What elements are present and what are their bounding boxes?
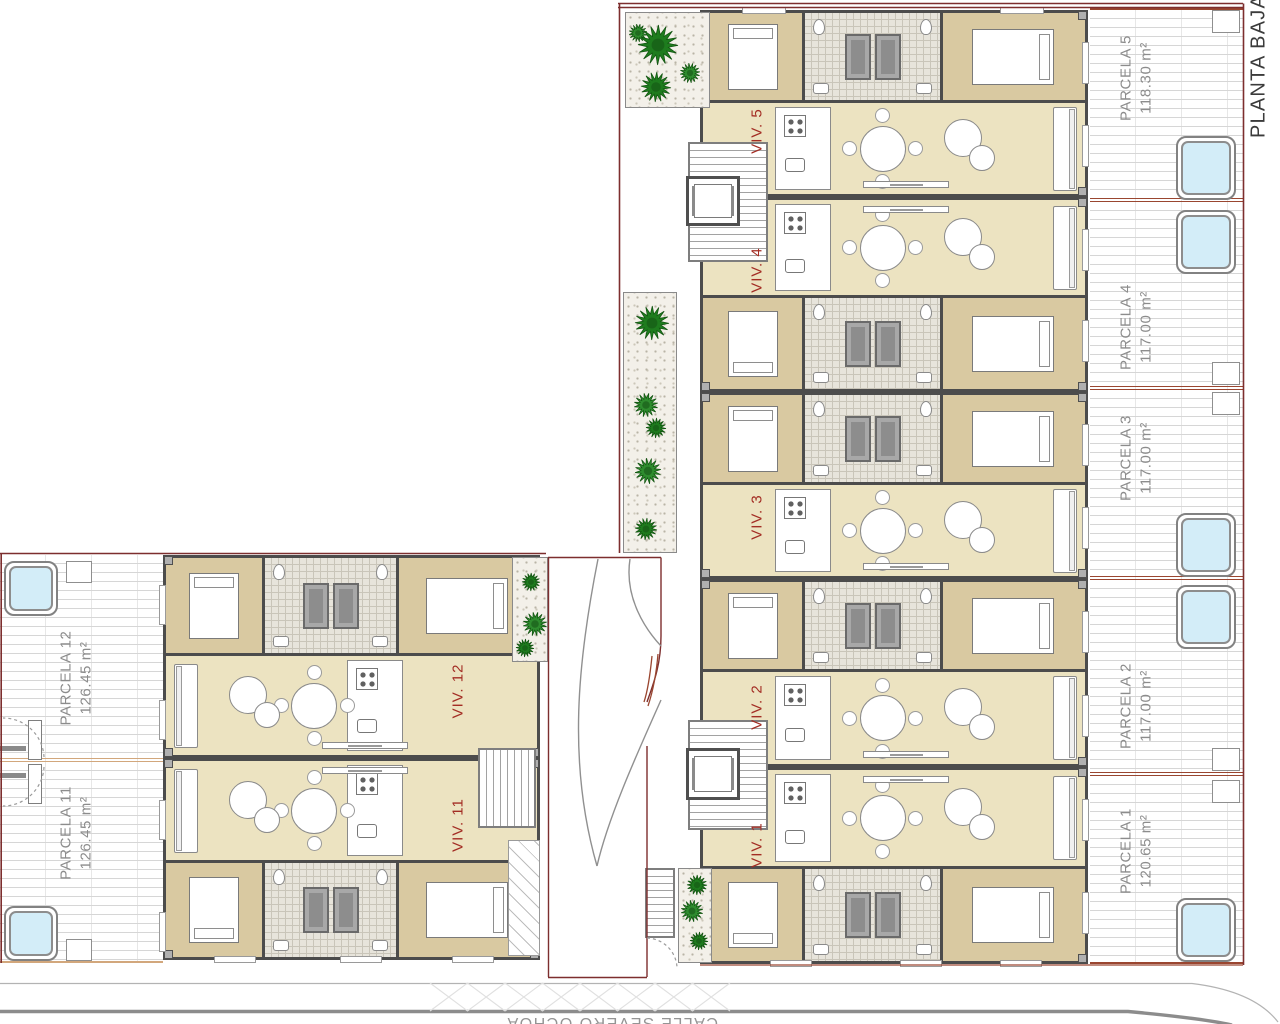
shower-tray <box>881 40 895 74</box>
crossing-hatch <box>430 983 730 1011</box>
sofa-icon <box>1053 107 1077 191</box>
dining-table-icon <box>291 788 337 834</box>
parcel-name: PARCELA 1 <box>1117 808 1137 894</box>
washbasin-icon <box>273 940 289 951</box>
toilet-icon <box>376 869 388 885</box>
shower-tray <box>881 327 895 361</box>
terrace-utility-box <box>66 561 92 583</box>
terrace-utility-box <box>1212 748 1240 771</box>
wall-pier <box>164 556 173 565</box>
dining-table-icon <box>860 225 906 271</box>
bed-icon <box>972 316 1054 372</box>
interior-wall <box>396 558 399 653</box>
shower-icon <box>845 416 871 462</box>
bed-pillow <box>733 362 773 373</box>
sofa-icon <box>1053 776 1077 860</box>
bed-icon <box>728 882 778 948</box>
parcel-label: PARCELA 1120.65 m² <box>1117 808 1156 894</box>
chair-icon <box>875 108 890 123</box>
bed-icon <box>972 411 1054 467</box>
elevator-rail <box>692 758 695 790</box>
window <box>1082 611 1089 653</box>
sofa-icon <box>1053 206 1077 290</box>
sink-icon <box>357 824 377 838</box>
tree-center <box>531 620 539 628</box>
toilet-icon <box>376 564 388 580</box>
parcel-label: PARCELA 2117.00 m² <box>1117 663 1156 749</box>
gate-bar <box>0 773 26 778</box>
parcel-label: PARCELA 4117.00 m² <box>1117 284 1156 370</box>
window <box>340 956 382 963</box>
stove-icon <box>784 497 806 519</box>
plan-title: PLANTA BAJA <box>1248 0 1271 138</box>
washbasin-icon <box>372 636 388 647</box>
shower-icon <box>845 34 871 80</box>
window <box>214 956 256 963</box>
terrace-utility-box <box>66 939 92 961</box>
dwelling-label: VIV. 5 <box>749 108 766 153</box>
bed-pillow <box>493 583 504 629</box>
wall-pier <box>1078 954 1087 963</box>
window <box>159 912 166 952</box>
window <box>1000 960 1042 967</box>
sofa-icon <box>1053 676 1077 760</box>
shower-icon <box>875 603 901 649</box>
shower-icon <box>333 887 359 933</box>
window <box>1082 892 1089 934</box>
parcel-area: 118.30 m² <box>1136 35 1156 121</box>
elevator-rail <box>731 186 734 217</box>
parcel-area: 120.65 m² <box>1136 808 1156 894</box>
shower-icon <box>845 603 871 649</box>
tree-center <box>689 908 696 915</box>
dining-table-icon <box>860 126 906 172</box>
tv-sideboard-icon <box>863 563 949 570</box>
side-table-icon <box>969 244 995 270</box>
washbasin-icon <box>813 944 829 955</box>
tree-center <box>652 39 665 52</box>
dwelling-label: VIV. 12 <box>450 664 467 719</box>
side-table-icon <box>254 702 280 728</box>
dining-table-icon <box>860 795 906 841</box>
pool-water <box>1181 141 1231 195</box>
sofa-back <box>1069 491 1075 571</box>
side-table-icon <box>969 714 995 740</box>
chair-icon <box>875 678 890 693</box>
chair-icon <box>842 811 857 826</box>
terrace-utility-box <box>1212 10 1240 33</box>
washbasin-icon <box>372 940 388 951</box>
washbasin-icon <box>916 372 932 383</box>
tree-center <box>694 882 700 888</box>
shower-tray <box>309 589 323 623</box>
shower-tray <box>851 609 865 643</box>
tree-center <box>687 70 693 76</box>
bed-pillow <box>1039 34 1050 80</box>
bed-icon <box>728 406 778 472</box>
stove-icon <box>356 773 378 795</box>
tv-sideboard-icon <box>863 181 949 188</box>
shower-icon <box>333 583 359 629</box>
bathroom-core <box>805 13 941 100</box>
chair-icon <box>908 523 923 538</box>
side-table-icon <box>969 145 995 171</box>
bed-pillow <box>1039 892 1050 938</box>
gate-bar <box>0 746 26 751</box>
stove-icon <box>784 684 806 706</box>
window <box>742 7 786 14</box>
gate-post <box>28 720 42 760</box>
bed-pillow <box>733 597 773 608</box>
tv-sideboard-icon <box>322 767 408 774</box>
bed-icon <box>189 573 239 639</box>
chair-icon <box>908 141 923 156</box>
sofa-icon <box>174 664 198 748</box>
shower-icon <box>303 583 329 629</box>
washbasin-icon <box>273 636 289 647</box>
parcel-name: PARCELA 2 <box>1117 663 1137 749</box>
chair-icon <box>340 698 355 713</box>
toilet-icon <box>813 588 825 604</box>
pool-water <box>1181 518 1231 572</box>
gate-post <box>28 764 42 804</box>
ramp-curves <box>578 559 661 866</box>
tv-sideboard-icon <box>863 776 949 783</box>
bed-icon <box>972 887 1054 943</box>
wall-pier <box>701 580 710 589</box>
tv-screen <box>348 745 382 747</box>
elevator-rail <box>731 758 734 790</box>
bed-icon <box>972 29 1054 85</box>
wall-pier <box>1078 198 1087 207</box>
tv-sideboard-icon <box>322 742 408 749</box>
bed-icon <box>728 24 778 90</box>
chair-icon <box>842 240 857 255</box>
ramp-hatch <box>508 840 540 956</box>
floor-plan-canvas: PARCELA 5118.30 m²PARCELA 4117.00 m²PARC… <box>0 0 1280 1024</box>
shower-icon <box>875 416 901 462</box>
bed-pillow <box>733 28 773 39</box>
dwelling-label: VIV. 3 <box>749 494 766 539</box>
toilet-icon <box>920 304 932 320</box>
window <box>159 700 166 740</box>
bed-icon <box>728 593 778 659</box>
bathroom-core <box>805 869 941 961</box>
planter-bed <box>625 12 710 108</box>
parcel-area: 117.00 m² <box>1136 284 1156 370</box>
washbasin-icon <box>813 465 829 476</box>
dining-table-icon <box>291 683 337 729</box>
parcel-name: PARCELA 11 <box>57 786 77 880</box>
dwelling-label: VIV. 2 <box>749 684 766 729</box>
tv-screen <box>890 754 924 756</box>
wall-pier <box>701 382 710 391</box>
chair-icon <box>875 273 890 288</box>
swimming-pool <box>1176 210 1236 274</box>
tree-center <box>528 579 534 585</box>
window <box>452 956 494 963</box>
tv-screen <box>890 566 924 568</box>
dwelling-label: VIV. 11 <box>450 798 467 852</box>
tv-screen <box>890 779 924 781</box>
elevator <box>686 748 740 800</box>
sofa-back <box>1069 778 1075 858</box>
side-table-icon <box>969 527 995 553</box>
swimming-pool <box>1176 898 1236 962</box>
pool-water <box>1181 590 1231 644</box>
wall-pier <box>1078 11 1087 20</box>
tv-screen <box>348 770 382 772</box>
washbasin-icon <box>813 83 829 94</box>
tv-screen <box>890 184 924 186</box>
chair-icon <box>842 711 857 726</box>
toilet-icon <box>813 304 825 320</box>
bathroom-core <box>805 298 941 389</box>
shower-tray <box>339 893 353 927</box>
bed-icon <box>426 882 508 938</box>
toilet-icon <box>920 401 932 417</box>
interior-wall <box>940 298 943 389</box>
interior-wall <box>940 869 943 961</box>
bed-pillow <box>493 887 504 933</box>
washbasin-icon <box>916 83 932 94</box>
tv-sideboard-icon <box>863 751 949 758</box>
wall-pier <box>1078 382 1087 391</box>
window <box>1082 320 1089 362</box>
pool-water <box>1181 903 1231 957</box>
parcel-name: PARCELA 4 <box>1117 284 1137 370</box>
window <box>770 960 812 967</box>
chair-icon <box>908 711 923 726</box>
chair-icon <box>875 490 890 505</box>
bathroom-core <box>805 395 941 482</box>
shower-tray <box>851 422 865 456</box>
tree-center <box>651 82 661 92</box>
trees-svg <box>513 558 549 663</box>
swimming-pool <box>1176 513 1236 577</box>
bathroom-core <box>265 558 397 653</box>
shower-tray <box>851 327 865 361</box>
parcel-name: PARCELA 12 <box>57 631 77 726</box>
interior-wall <box>166 653 537 656</box>
planter-bed <box>678 868 712 963</box>
shower-tray <box>881 422 895 456</box>
chair-icon <box>908 240 923 255</box>
toilet-icon <box>813 401 825 417</box>
bed-pillow <box>1039 321 1050 367</box>
dwelling-label: VIV. 4 <box>749 247 766 292</box>
stove-icon <box>356 668 378 690</box>
chair-icon <box>875 844 890 859</box>
dining-table-icon <box>860 695 906 741</box>
parcel-name: PARCELA 5 <box>1117 35 1137 121</box>
stove-icon <box>784 782 806 804</box>
trees-svg <box>624 293 678 554</box>
window <box>1082 229 1089 271</box>
wall-pier <box>1078 393 1087 402</box>
staircase <box>478 748 536 828</box>
terrace-utility-box <box>1212 780 1240 803</box>
bed-icon <box>728 311 778 377</box>
sink-icon <box>785 540 805 554</box>
bed-pillow <box>733 410 773 421</box>
swimming-pool <box>4 906 58 961</box>
dwelling-label: VIV. 1 <box>749 822 766 867</box>
interior-wall <box>396 863 399 957</box>
wall-pier <box>1078 768 1087 777</box>
sofa-back <box>1069 678 1075 758</box>
bed-icon <box>189 877 239 943</box>
bathroom-core <box>805 582 941 669</box>
parcel-label: PARCELA 5118.30 m² <box>1117 35 1156 121</box>
tv-sideboard-icon <box>863 206 949 213</box>
parcel-label: PARCELA 3117.00 m² <box>1117 415 1156 501</box>
sofa-back <box>176 771 182 851</box>
window <box>1082 507 1089 549</box>
shower-icon <box>875 892 901 938</box>
pool-water <box>9 911 53 956</box>
washbasin-icon <box>813 652 829 663</box>
shower-icon <box>875 321 901 367</box>
window <box>1000 7 1044 14</box>
wall-pier <box>1078 580 1087 589</box>
dining-table-icon <box>860 508 906 554</box>
shower-icon <box>875 34 901 80</box>
parcel-area: 117.00 m² <box>1136 415 1156 501</box>
parcel-label: PARCELA 11126.45 m² <box>57 786 96 880</box>
shower-icon <box>303 887 329 933</box>
tv-screen <box>890 209 924 211</box>
wall-pier <box>164 759 173 768</box>
shower-tray <box>851 898 865 932</box>
trees-svg <box>626 13 711 109</box>
sink-icon <box>357 719 377 733</box>
window <box>1082 42 1089 84</box>
bed-pillow <box>1039 416 1050 462</box>
sofa-icon <box>174 769 198 853</box>
apartment-unit-viv-3 <box>700 392 1088 579</box>
terrace-utility-box <box>1212 362 1240 385</box>
bed-icon <box>426 578 508 634</box>
toilet-icon <box>920 588 932 604</box>
washbasin-icon <box>813 372 829 383</box>
washbasin-icon <box>916 465 932 476</box>
window <box>1082 695 1089 737</box>
washbasin-icon <box>916 652 932 663</box>
elevator-car <box>694 184 732 218</box>
window <box>1082 799 1089 841</box>
parcel-area: 117.00 m² <box>1136 663 1156 749</box>
shower-icon <box>845 892 871 938</box>
apartment-unit-viv-12 <box>163 555 540 758</box>
toilet-icon <box>920 19 932 35</box>
shower-tray <box>339 589 353 623</box>
tree-center <box>647 318 658 329</box>
tree-center <box>696 938 702 944</box>
elevator-car <box>694 756 732 792</box>
shower-tray <box>881 609 895 643</box>
chair-icon <box>842 141 857 156</box>
window <box>1082 125 1089 167</box>
toilet-icon <box>920 875 932 891</box>
swimming-pool <box>1176 136 1236 200</box>
swimming-pool <box>1176 585 1236 649</box>
tree-center <box>642 401 650 409</box>
planter-bed <box>623 292 677 553</box>
parcel-name: PARCELA 3 <box>1117 415 1137 501</box>
bed-pillow <box>1039 603 1050 649</box>
window <box>159 800 166 840</box>
bed-pillow <box>733 933 773 944</box>
interior-wall <box>703 100 1085 103</box>
chair-icon <box>307 836 322 851</box>
interior-wall <box>940 13 943 100</box>
chair-icon <box>307 665 322 680</box>
parcel-label: PARCELA 12126.45 m² <box>57 631 96 726</box>
tree-center <box>653 425 659 431</box>
terrace-utility-box <box>1212 392 1240 415</box>
street-name-label: CALLE SEVERO OCHOA <box>506 1013 718 1024</box>
stove-icon <box>784 212 806 234</box>
window <box>159 585 166 625</box>
interior-wall <box>703 482 1085 485</box>
stove-icon <box>784 115 806 137</box>
interior-wall <box>940 395 943 482</box>
wall-pier <box>1078 569 1087 578</box>
bathroom-core <box>265 863 397 957</box>
toilet-icon <box>273 869 285 885</box>
washbasin-icon <box>916 944 932 955</box>
shower-tray <box>309 893 323 927</box>
toilet-icon <box>813 19 825 35</box>
sofa-back <box>176 666 182 746</box>
exterior-staircase <box>645 868 675 938</box>
sink-icon <box>785 830 805 844</box>
chair-icon <box>340 803 355 818</box>
tree-center <box>635 30 641 36</box>
wall-pier <box>1078 757 1087 766</box>
elevator-rail <box>692 186 695 217</box>
bed-icon <box>972 598 1054 654</box>
wall-pier <box>701 393 710 402</box>
tree-center <box>643 526 650 533</box>
wall-pier <box>701 569 710 578</box>
wall-pier <box>164 748 173 757</box>
pool-water <box>9 566 53 611</box>
sink-icon <box>785 158 805 172</box>
shower-tray <box>881 898 895 932</box>
elevator <box>686 176 740 226</box>
chair-icon <box>908 811 923 826</box>
toilet-icon <box>273 564 285 580</box>
toilet-icon <box>813 875 825 891</box>
chair-icon <box>307 731 322 746</box>
pool-water <box>1181 215 1231 269</box>
sofa-back <box>1069 109 1075 189</box>
shower-tray <box>851 40 865 74</box>
parcel-area: 126.45 m² <box>76 631 96 726</box>
sink-icon <box>785 728 805 742</box>
trees-svg <box>679 869 713 964</box>
bed-pillow <box>194 928 234 939</box>
wall-pier <box>1078 187 1087 196</box>
parcel-area: 126.45 m² <box>76 786 96 880</box>
interior-wall <box>940 582 943 669</box>
sink-icon <box>785 259 805 273</box>
swimming-pool <box>4 561 58 616</box>
side-table-icon <box>969 814 995 840</box>
tree-center <box>644 467 652 475</box>
